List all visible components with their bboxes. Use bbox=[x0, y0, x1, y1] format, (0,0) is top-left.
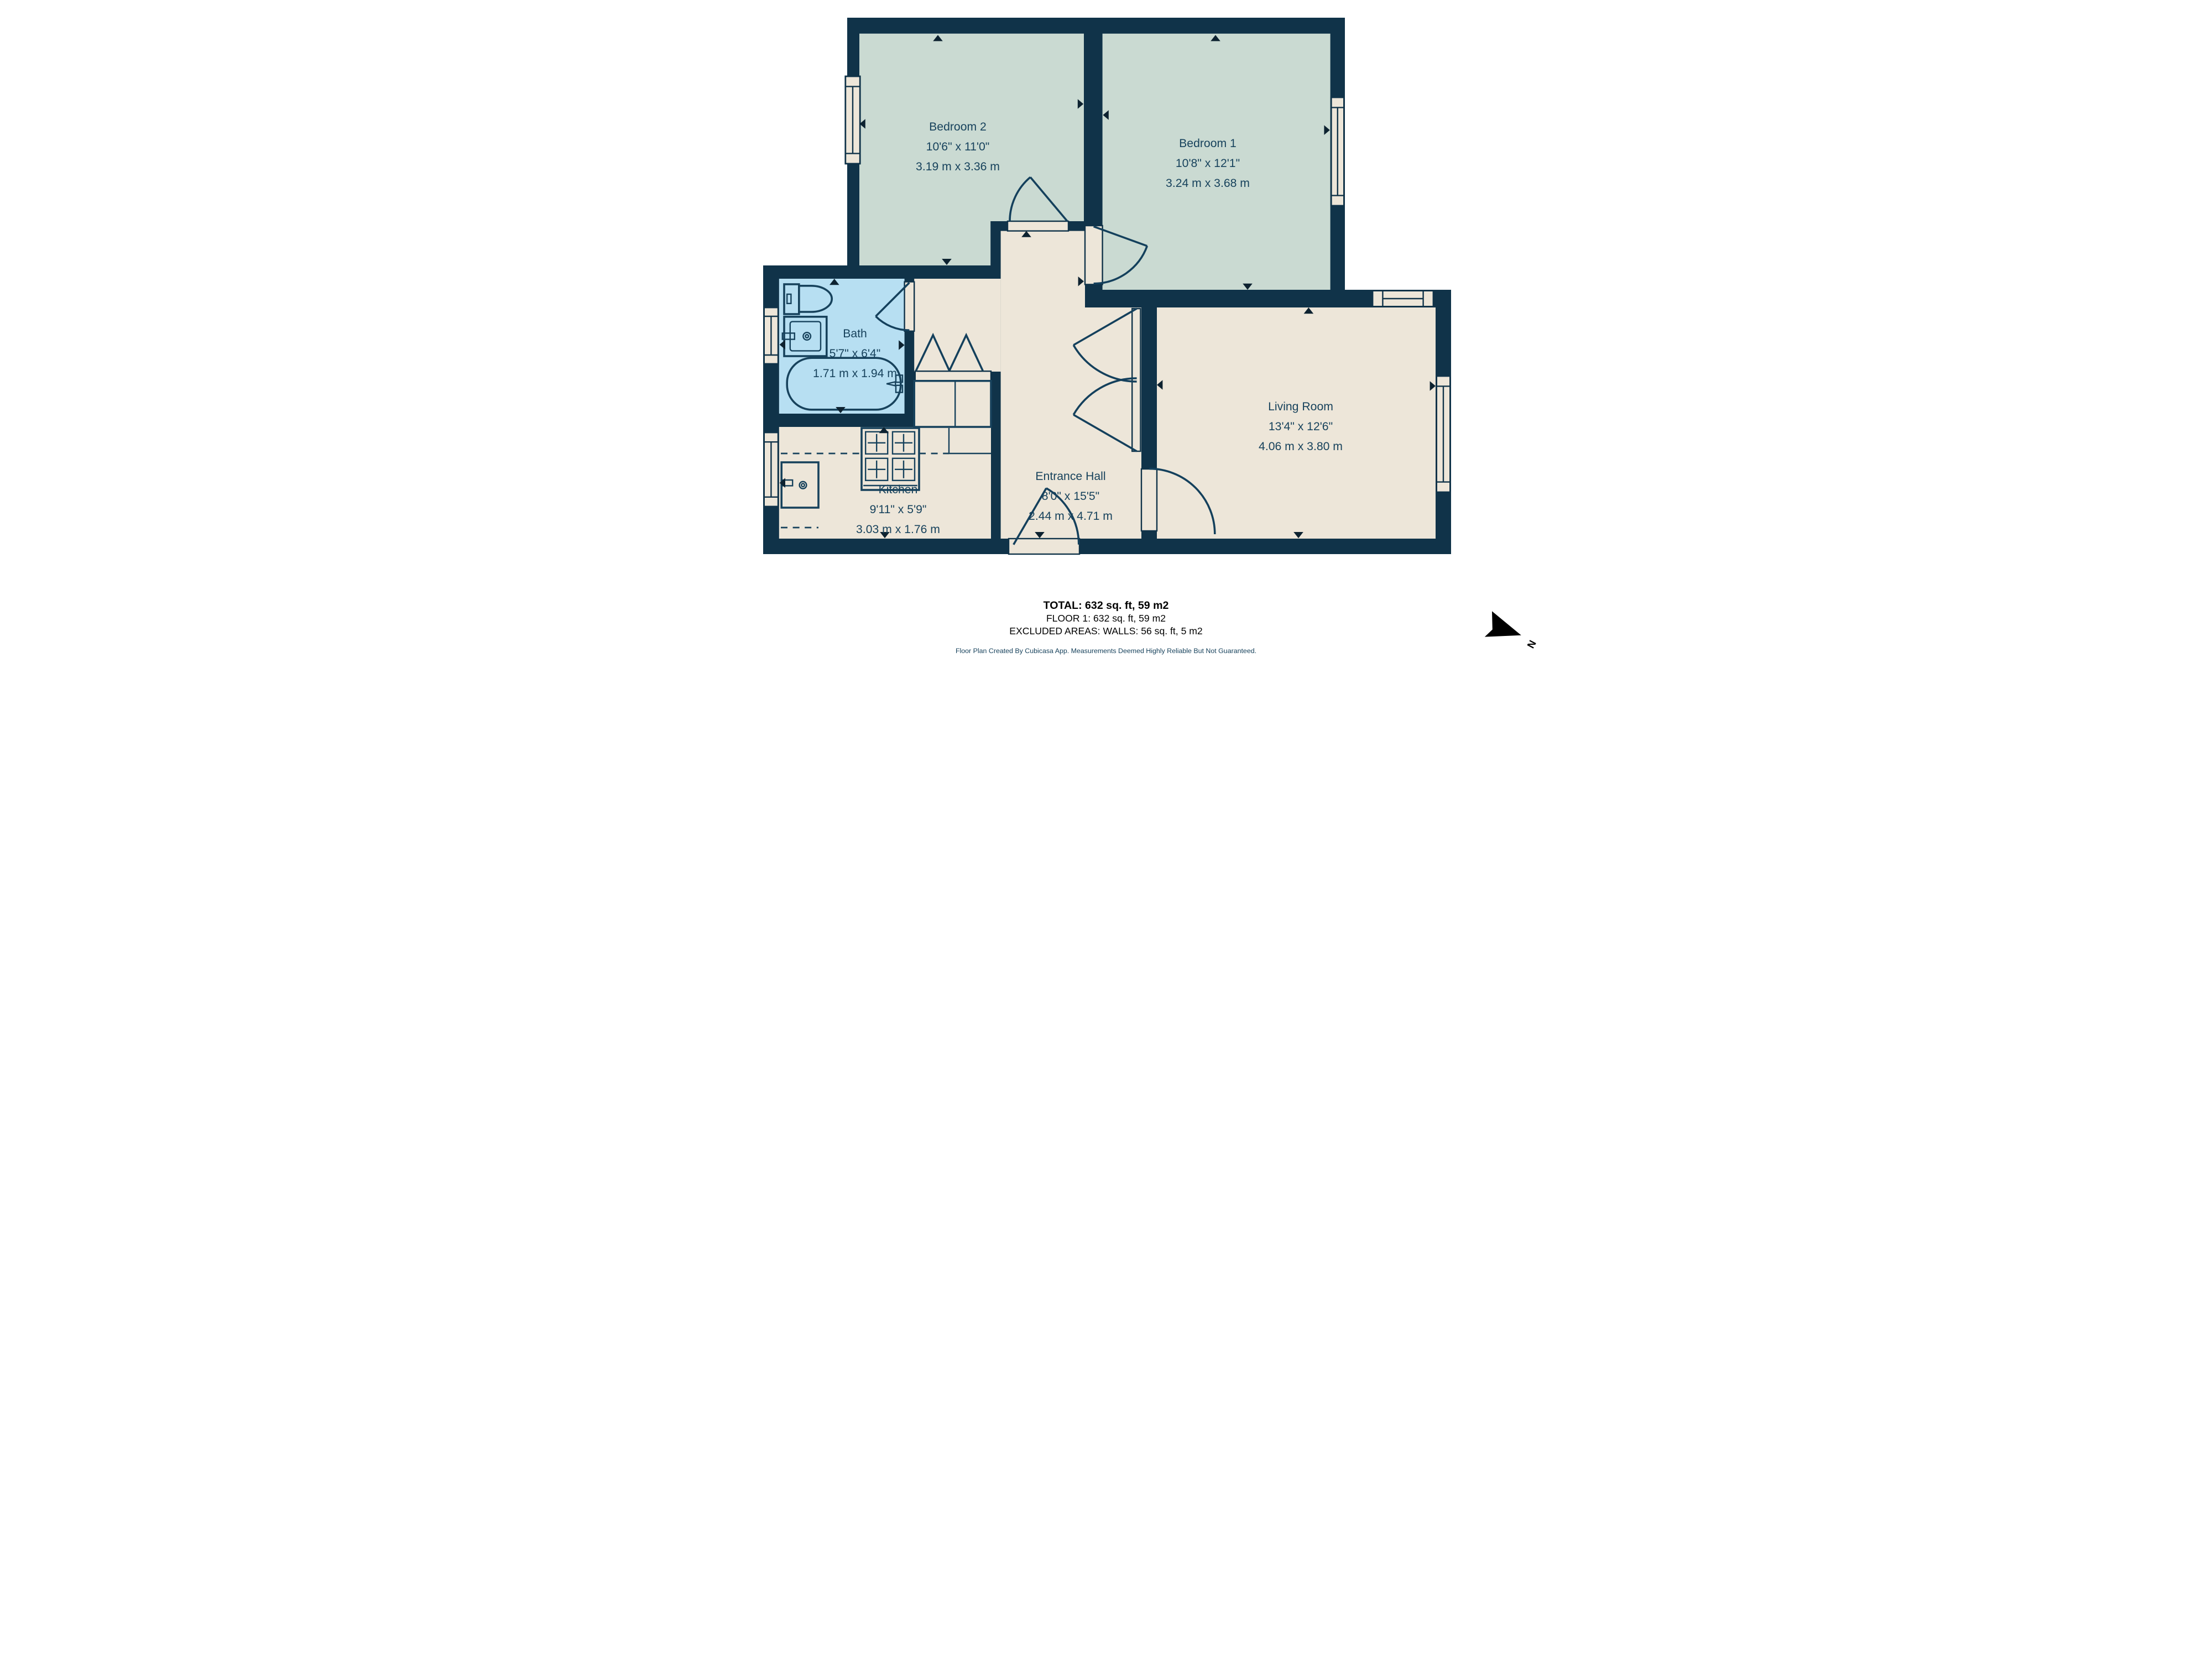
window-bedroom-2-left bbox=[846, 76, 860, 164]
door-threshold-living bbox=[1141, 469, 1157, 531]
summary-excluded: EXCLUDED AREAS: WALLS: 56 sq. ft, 5 m2 bbox=[1009, 625, 1202, 637]
north-arrow-icon: N bbox=[1485, 611, 1538, 650]
door-threshold-entrance bbox=[1009, 539, 1079, 554]
wardrobe-floor bbox=[914, 381, 991, 427]
summary-floor: FLOOR 1: 632 sq. ft, 59 m2 bbox=[1046, 613, 1166, 624]
door-threshold-bedroom-1 bbox=[1085, 226, 1103, 284]
label-hall-metric: 2.44 m x 4.71 m bbox=[1029, 510, 1113, 523]
summary-total: TOTAL: 632 sq. ft, 59 m2 bbox=[1044, 599, 1169, 612]
label-bedroom-2-name: Bedroom 2 bbox=[929, 121, 987, 133]
hall-pocket-floor bbox=[914, 279, 1000, 372]
north-label: N bbox=[1525, 638, 1538, 650]
label-hall-imperial: 8'0" x 15'5" bbox=[1042, 490, 1099, 503]
floor-plan-page: Bedroom 2 10'6" x 11'0" 3.19 m x 3.36 m … bbox=[664, 0, 1548, 664]
label-kitchen-imperial: 9'11" x 5'9" bbox=[870, 503, 927, 516]
label-living-metric: 4.06 m x 3.80 m bbox=[1259, 440, 1343, 453]
door-threshold-bath bbox=[905, 282, 915, 331]
label-hall-name: Entrance Hall bbox=[1035, 470, 1105, 483]
label-living-name: Living Room bbox=[1268, 400, 1333, 413]
label-bedroom-1-imperial: 10'8" x 12'1" bbox=[1176, 157, 1240, 170]
label-living-imperial: 13'4" x 12'6" bbox=[1269, 420, 1333, 433]
window-living-right bbox=[1437, 376, 1451, 492]
room-floor-kitchen bbox=[779, 427, 991, 539]
window-kitchen-left bbox=[764, 432, 779, 507]
floor-plan-canvas: Bedroom 2 10'6" x 11'0" 3.19 m x 3.36 m … bbox=[664, 0, 1548, 664]
room-floor-bath bbox=[779, 279, 905, 414]
label-bath-name: Bath bbox=[843, 327, 867, 340]
label-kitchen-metric: 3.03 m x 1.76 m bbox=[856, 523, 940, 536]
window-bedroom-1-right bbox=[1331, 97, 1344, 206]
window-living-top bbox=[1373, 291, 1433, 307]
door-threshold-bedroom-2 bbox=[1008, 221, 1068, 231]
label-bath-metric: 1.71 m x 1.94 m bbox=[813, 367, 897, 380]
window-bath-left bbox=[764, 307, 779, 364]
label-bedroom-2-imperial: 10'6" x 11'0" bbox=[926, 140, 990, 153]
label-bedroom-1-metric: 3.24 m x 3.68 m bbox=[1166, 177, 1250, 190]
label-bedroom-2-metric: 3.19 m x 3.36 m bbox=[916, 160, 1000, 173]
label-bedroom-1-name: Bedroom 1 bbox=[1179, 137, 1237, 150]
label-kitchen-name: Kitchen bbox=[879, 483, 918, 496]
label-bath-imperial: 5'7" x 6'4" bbox=[830, 347, 881, 360]
disclaimer-text: Floor Plan Created By Cubicasa App. Meas… bbox=[956, 647, 1256, 655]
